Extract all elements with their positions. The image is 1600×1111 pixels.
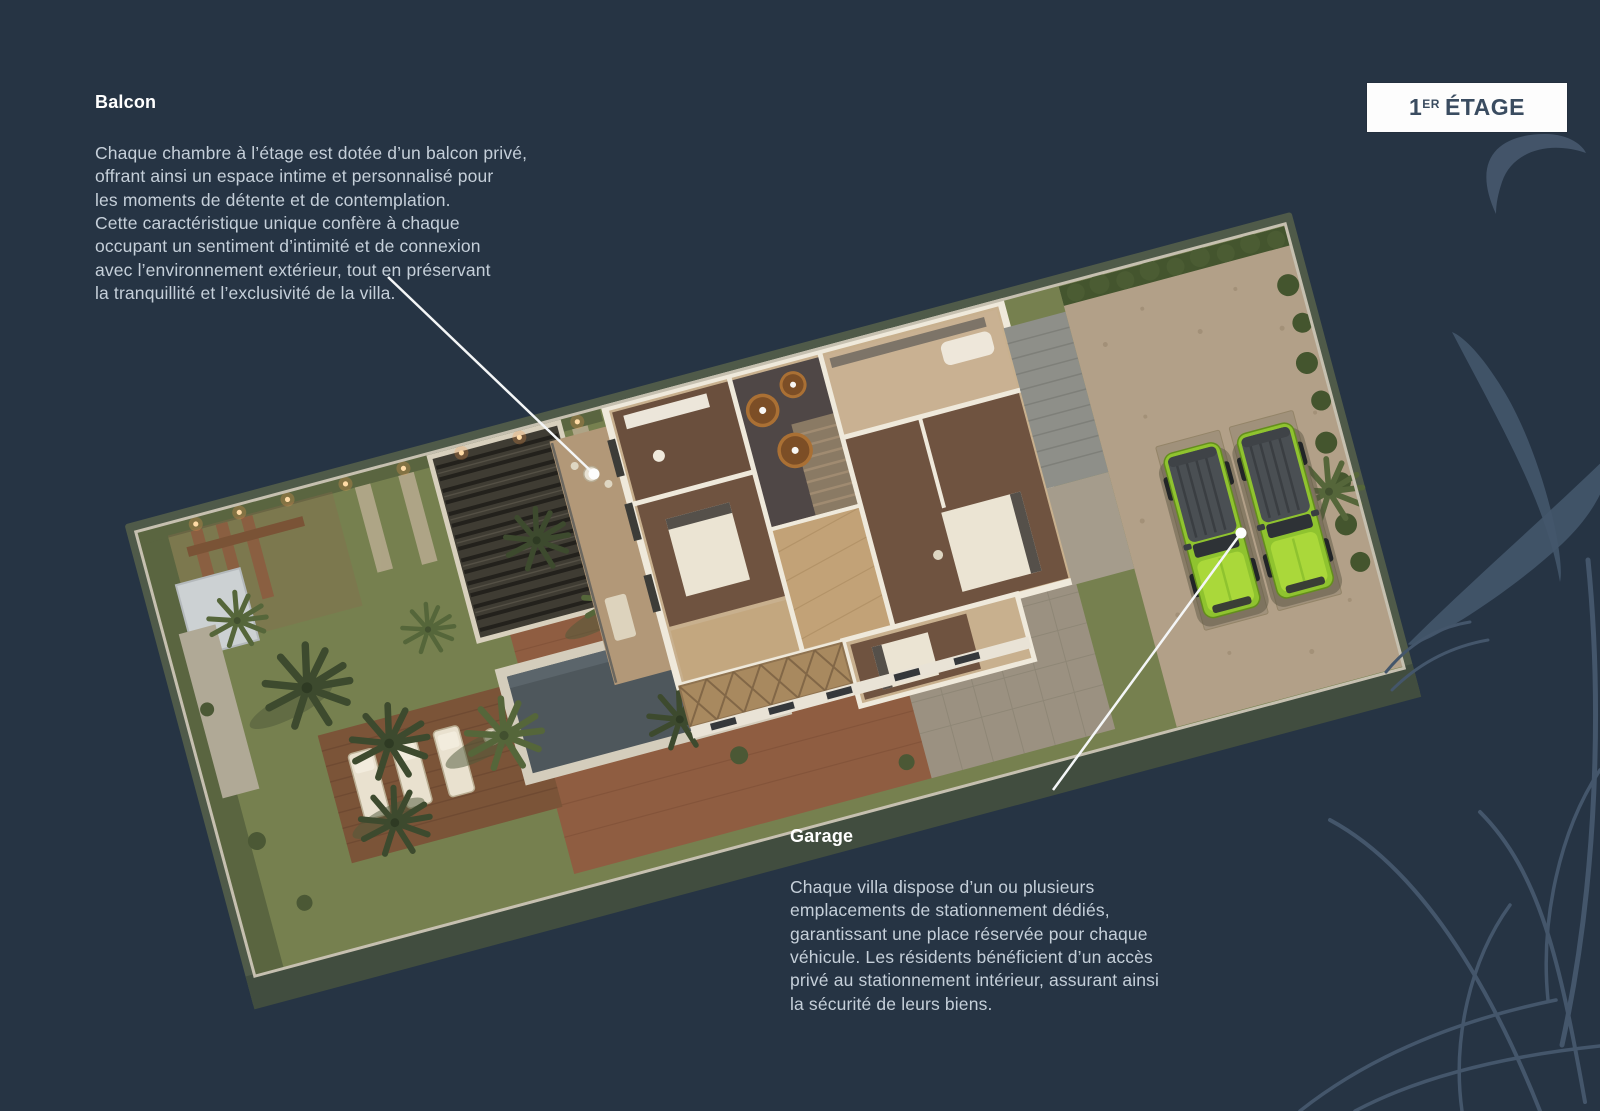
annotation-balcony-title: Balcon	[95, 91, 615, 113]
floor-badge-number: 1	[1409, 94, 1422, 121]
presentation-slide: Balcon Chaque chambre à l’étage est doté…	[0, 0, 1600, 1111]
floor-badge-label: ÉTAGE	[1445, 94, 1525, 121]
annotation-balcony: Balcon Chaque chambre à l’étage est doté…	[95, 68, 615, 329]
annotation-garage-body: Chaque villa dispose d’un ou plusieurs e…	[790, 876, 1230, 1016]
floor-badge: 1ERÉTAGE	[1367, 83, 1567, 132]
floor-badge-text: 1ERÉTAGE	[1409, 94, 1525, 121]
annotation-garage: Garage Chaque villa dispose d’un ou plus…	[790, 802, 1230, 1040]
annotation-garage-title: Garage	[790, 825, 1230, 847]
annotation-balcony-body: Chaque chambre à l’étage est dotée d’un …	[95, 142, 615, 306]
